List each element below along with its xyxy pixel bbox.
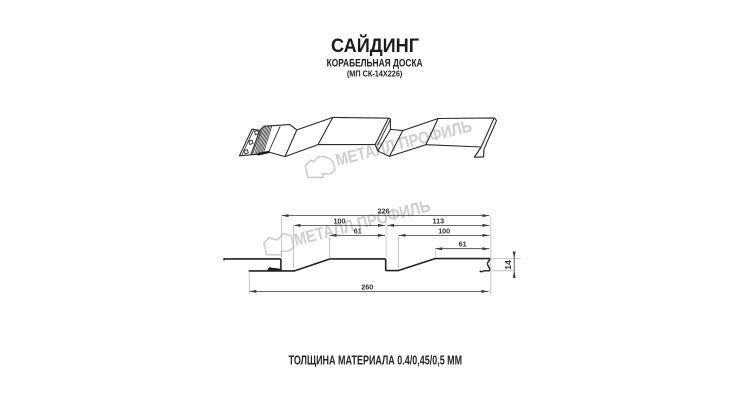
svg-text:ТОЛЩИНА МАТЕРИАЛА 0.4/0,45/0,5: ТОЛЩИНА МАТЕРИАЛА 0.4/0,45/0,5 ММ (289, 353, 463, 367)
svg-text:100: 100 (438, 226, 450, 235)
svg-text:61: 61 (354, 226, 362, 235)
svg-text:260: 260 (361, 282, 373, 291)
svg-text:100: 100 (334, 216, 346, 225)
svg-text:(МП СК-14Х226): (МП СК-14Х226) (347, 69, 403, 78)
svg-text:САЙДИНГ: САЙДИНГ (331, 33, 419, 57)
svg-text:113: 113 (432, 216, 444, 225)
svg-text:КОРАБЕЛЬНАЯ ДОСКА: КОРАБЕЛЬНАЯ ДОСКА (327, 58, 423, 70)
svg-text:226: 226 (378, 207, 390, 216)
svg-text:61: 61 (459, 240, 467, 249)
svg-text:14: 14 (503, 260, 513, 270)
